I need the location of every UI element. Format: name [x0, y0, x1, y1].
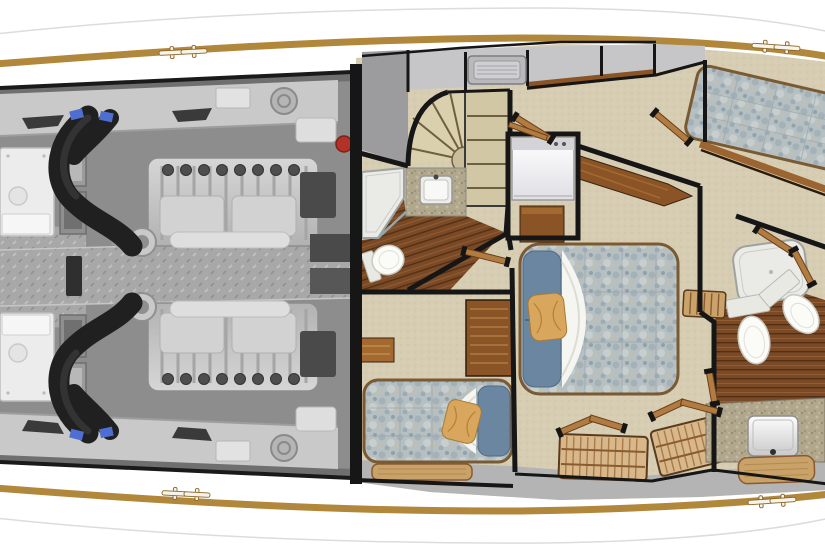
engine-room-starboard-half — [0, 293, 338, 469]
drawer-dresser — [466, 300, 512, 376]
blower-unit — [271, 88, 297, 114]
guest-berth — [364, 380, 512, 462]
wall — [448, 90, 510, 92]
master-west-wall — [512, 268, 515, 472]
yacht-floorplan — [0, 0, 825, 550]
cabinet-divider — [464, 52, 467, 90]
bench — [372, 464, 472, 480]
engine-room-port-half — [0, 80, 338, 256]
generator — [0, 148, 54, 236]
accommodations — [350, 42, 825, 500]
vanity-sink — [748, 416, 798, 456]
valve-cover — [160, 196, 224, 236]
hull-sheer-line-bottom — [0, 518, 825, 543]
deck-mat — [310, 268, 350, 294]
engine-room — [0, 72, 352, 478]
cabinet-divider — [600, 46, 603, 76]
equipment-box — [216, 88, 250, 108]
fire-extinguisher — [336, 136, 352, 152]
faucet — [434, 175, 439, 180]
faucet — [770, 449, 776, 455]
deck-step — [66, 256, 82, 296]
deck-mat — [310, 234, 350, 262]
foyer-landing — [362, 50, 408, 164]
laundry — [512, 138, 574, 200]
intake-box — [300, 172, 336, 218]
heat-exchanger — [170, 232, 290, 248]
floorplan-canvas — [0, 0, 825, 550]
equipment-box — [296, 118, 336, 142]
master-berth — [520, 244, 678, 394]
engine-room-bulkhead — [350, 64, 362, 484]
overhead-hatch — [468, 56, 526, 84]
wall-shelf — [358, 338, 394, 362]
blue-pillow — [478, 386, 510, 456]
gold-accent-pillow — [527, 292, 568, 342]
wall — [509, 238, 511, 250]
valve-cover — [232, 196, 296, 236]
hull-sheer-line-top — [0, 8, 825, 34]
day-head-sink — [420, 175, 452, 205]
cabinet-divider — [653, 44, 656, 74]
cane-closet-aft — [558, 434, 647, 481]
